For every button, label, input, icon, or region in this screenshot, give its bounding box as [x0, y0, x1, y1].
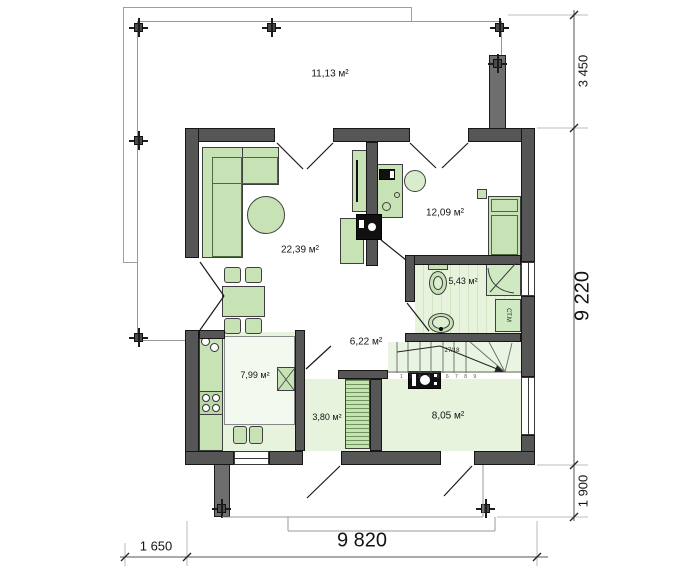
bathroom-area-label: 5,43 м² — [448, 276, 477, 286]
dimension-bottom-width: 9 820 — [337, 530, 387, 553]
plan-lines-overlay — [0, 0, 700, 575]
porch-outline — [222, 465, 495, 531]
door-swing-lines — [200, 143, 472, 498]
dimension-ticks — [121, 11, 578, 561]
fridge-cross — [278, 369, 294, 390]
terrace-area-label: 11,13 м² — [311, 69, 348, 80]
stair-note: 27/18 — [444, 348, 459, 354]
dimension-right-bottom: 1 900 — [576, 475, 591, 508]
living-area-label: 22,39 м² — [281, 245, 319, 256]
kitchen-area-label: 7,99 м² — [240, 370, 269, 380]
stair-treads — [388, 342, 521, 373]
boiler-area-label: 8,05 м² — [432, 411, 464, 422]
dimension-right-top: 3 450 — [576, 55, 591, 88]
hall-area-label: 6,22 м² — [350, 337, 382, 348]
dimension-bottom-left: 1 650 — [140, 539, 173, 554]
bedroom-area-label: 12,09 м² — [426, 208, 464, 219]
dimension-right-middle: 9 220 — [572, 271, 595, 321]
stair-step-numbers: 1 2 3 4 5 6 7 8 9 — [400, 374, 476, 380]
entry-area-label: 3,80 м² — [312, 412, 341, 422]
floor-plan: СТ.М — [0, 0, 700, 575]
dimension-lines — [120, 10, 574, 557]
shower-line — [488, 263, 516, 293]
dimension-extension-lines — [125, 15, 588, 566]
